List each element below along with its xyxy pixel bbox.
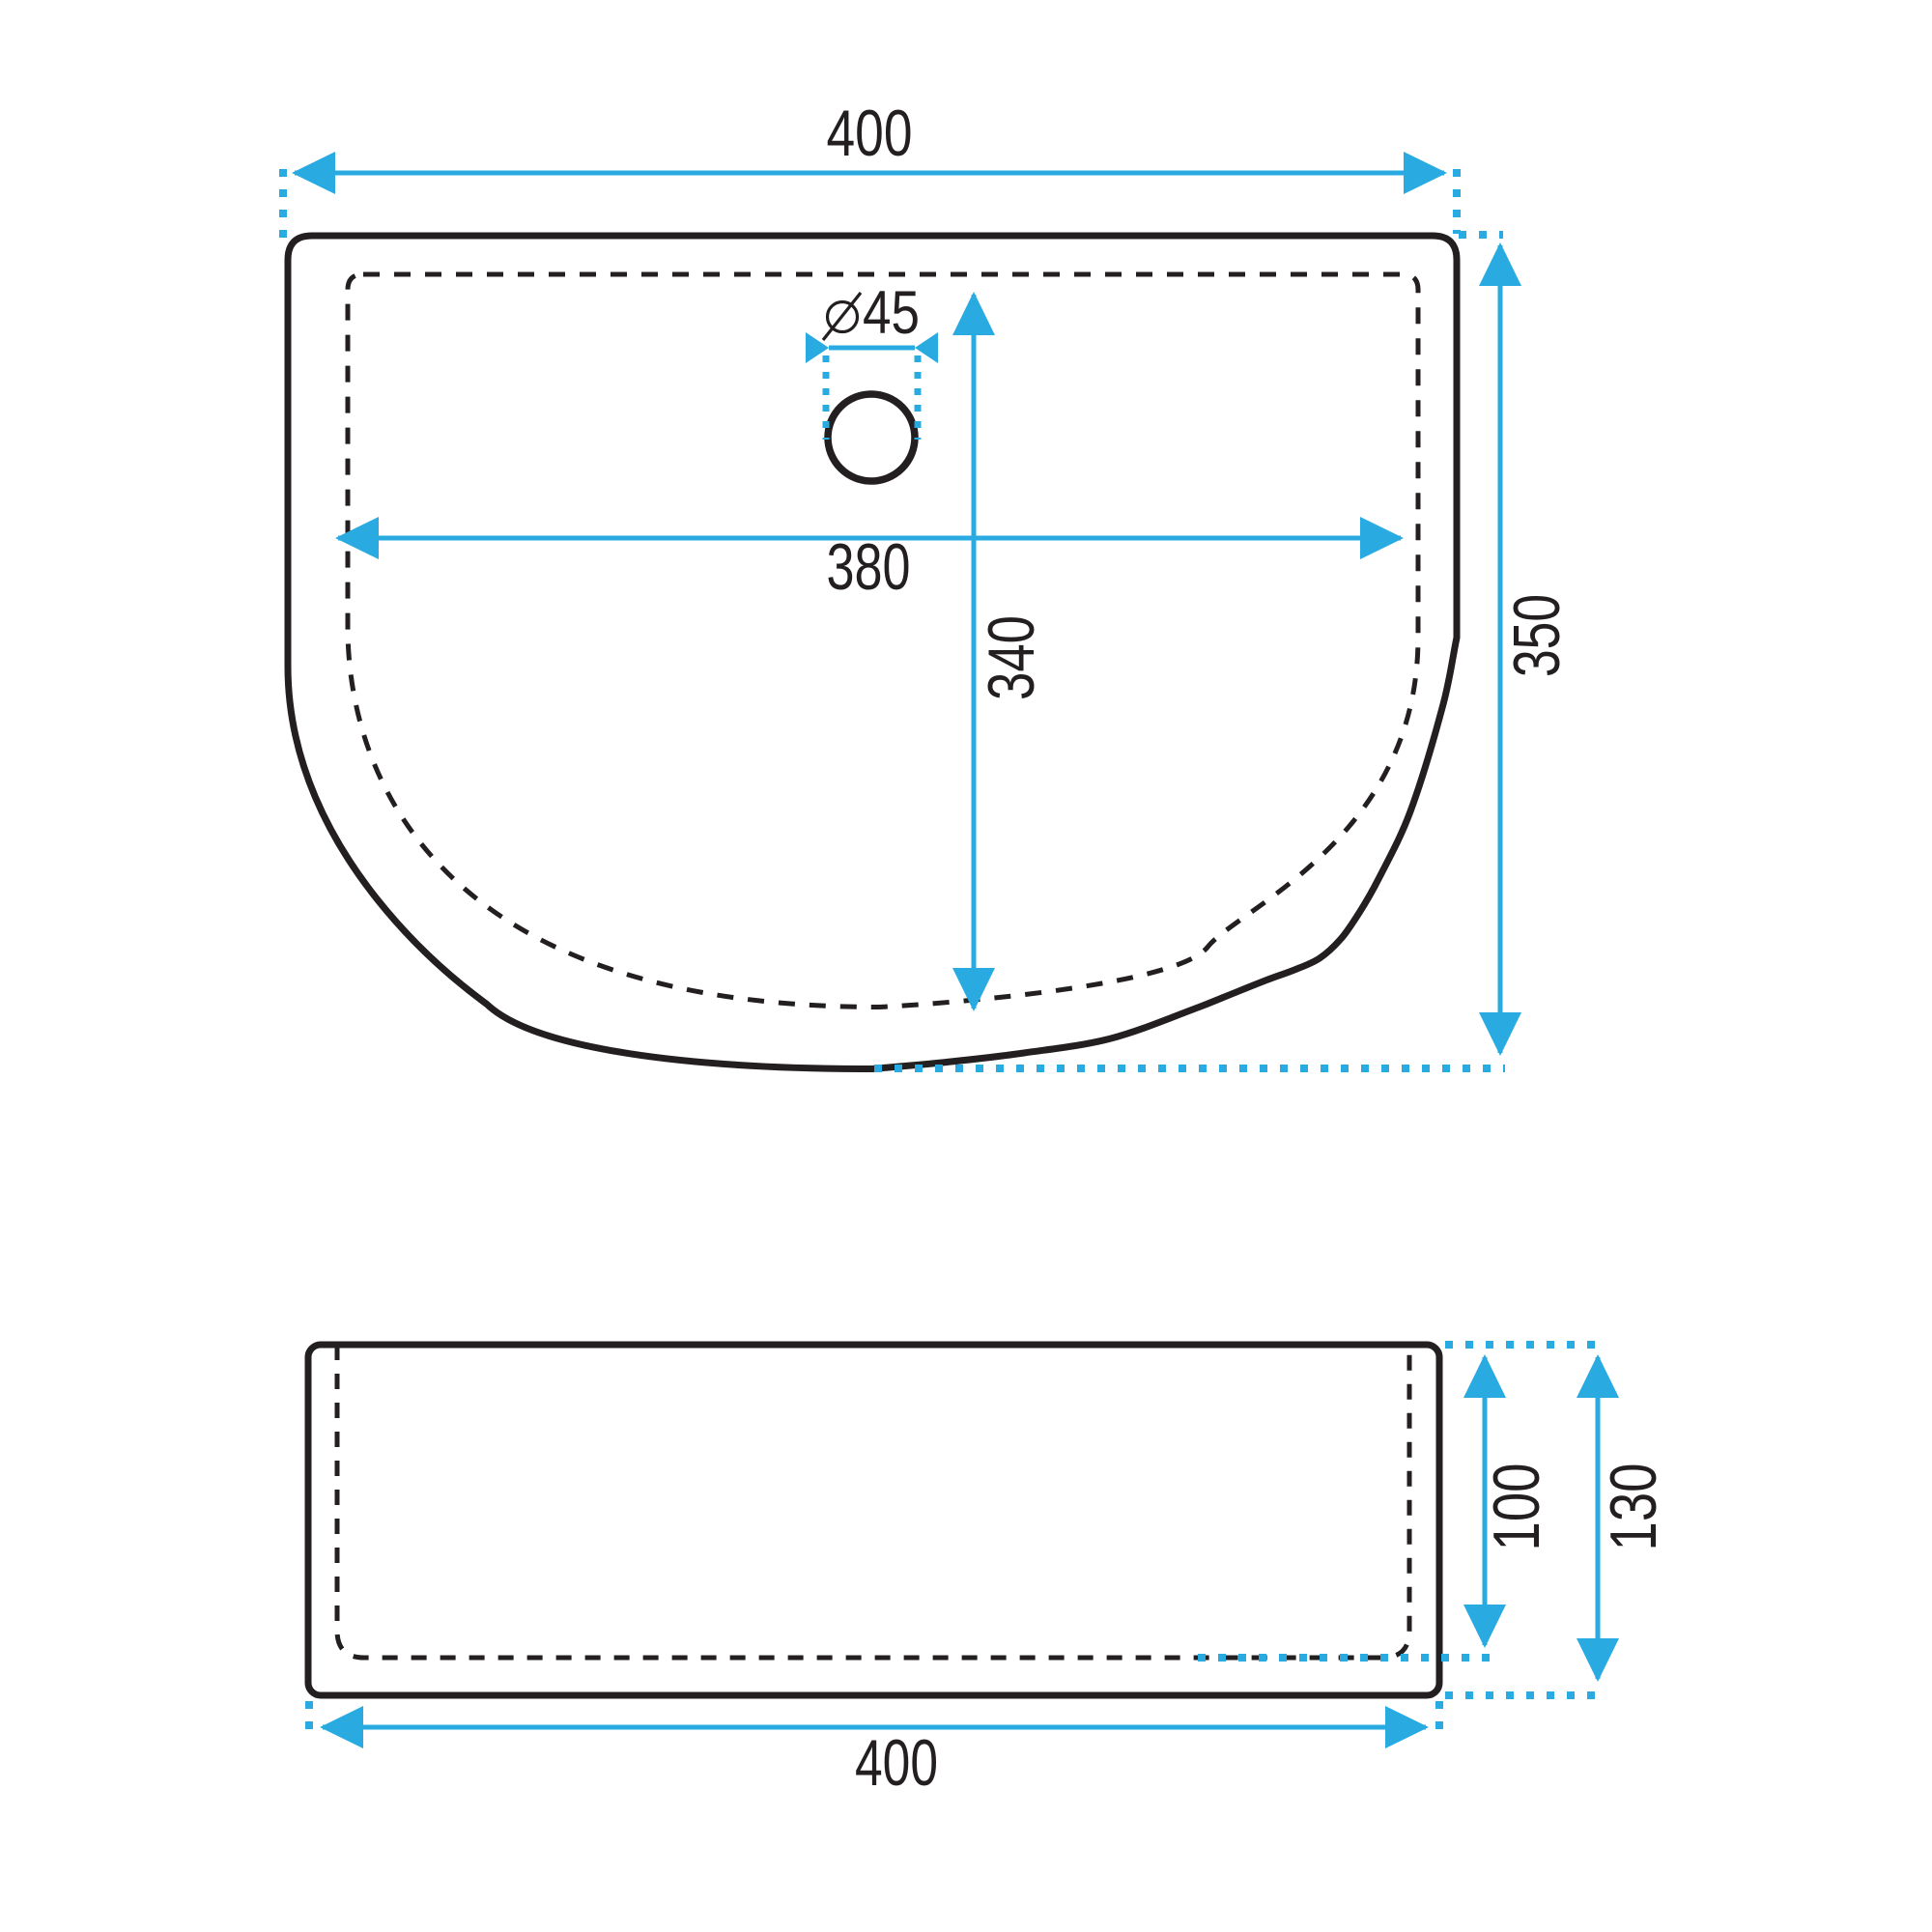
svg-text:340: 340 xyxy=(975,615,1048,700)
svg-text:400: 400 xyxy=(827,97,913,170)
svg-text:380: 380 xyxy=(827,530,911,604)
svg-text:400: 400 xyxy=(855,1726,938,1800)
svg-text:100: 100 xyxy=(1480,1463,1553,1551)
svg-text:350: 350 xyxy=(1500,594,1574,677)
svg-text:45: 45 xyxy=(863,279,920,347)
svg-text:130: 130 xyxy=(1597,1463,1670,1551)
